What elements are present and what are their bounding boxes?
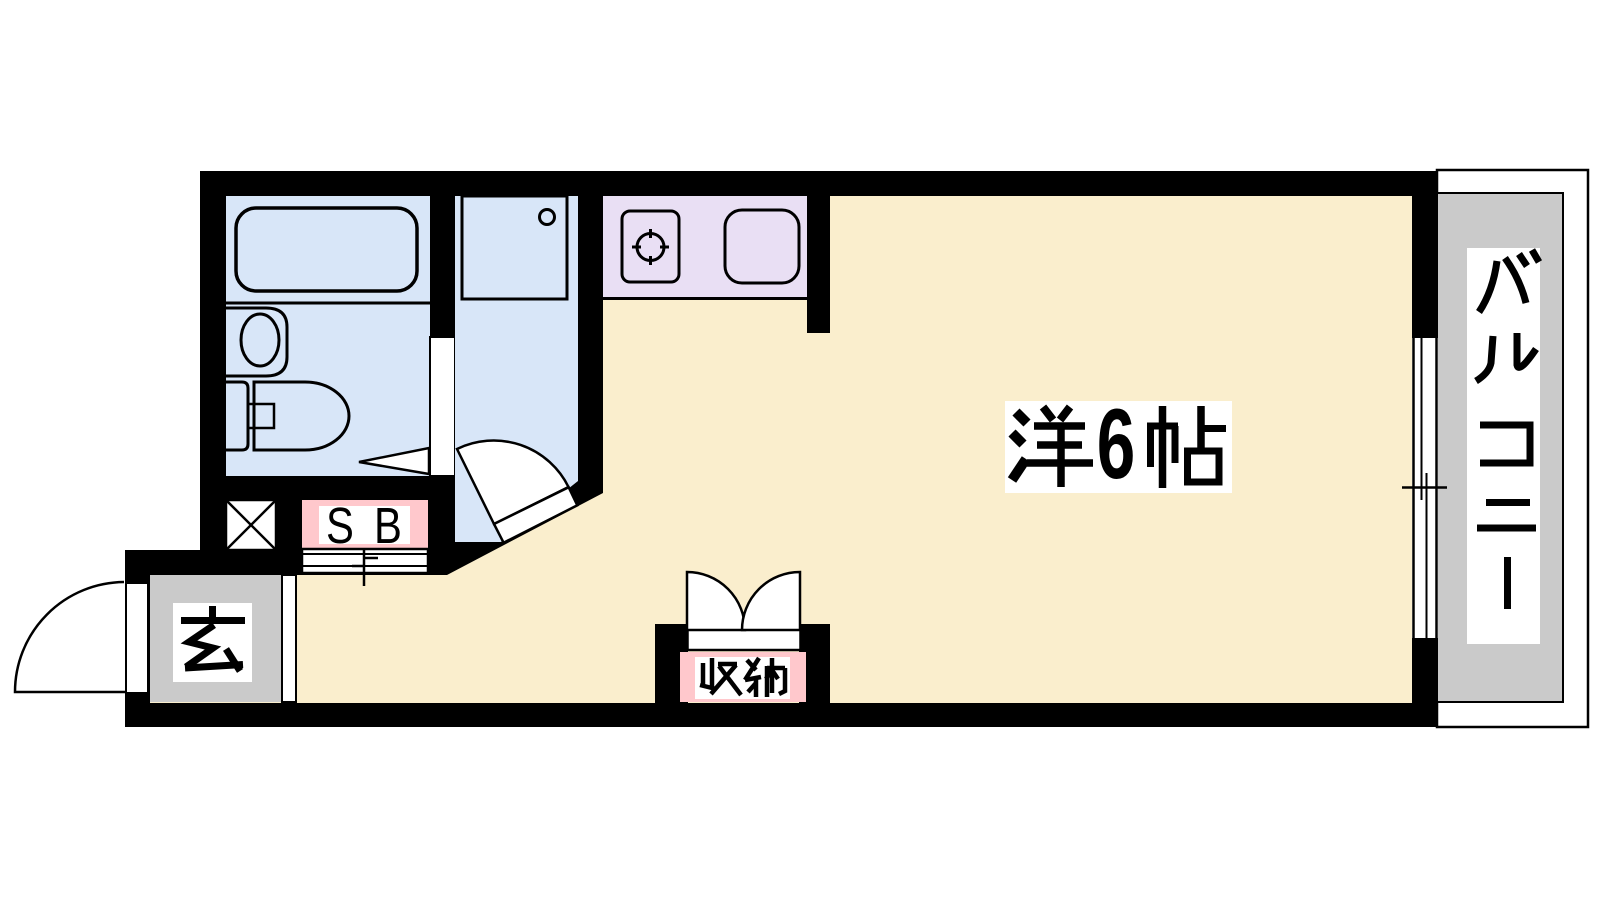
svg-text:B: B bbox=[374, 497, 402, 554]
svg-text:6: 6 bbox=[1097, 390, 1136, 500]
svg-text:S: S bbox=[326, 497, 354, 554]
